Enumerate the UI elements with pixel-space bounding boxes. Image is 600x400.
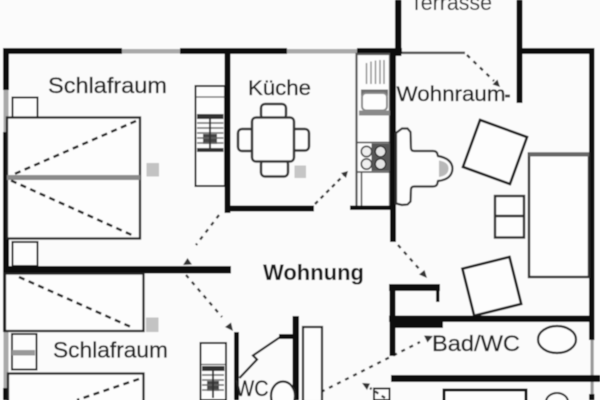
svg-text:WC: WC bbox=[236, 376, 269, 400]
svg-text:Bad/WC: Bad/WC bbox=[432, 331, 520, 356]
svg-text:Schlafraum: Schlafraum bbox=[48, 73, 167, 98]
svg-text:Schlafraum: Schlafraum bbox=[53, 338, 168, 363]
svg-text:Wohnraum: Wohnraum bbox=[397, 83, 506, 106]
svg-text:Terrasse: Terrasse bbox=[410, 0, 492, 15]
svg-text:Küche: Küche bbox=[248, 77, 311, 100]
svg-text:Wohnung: Wohnung bbox=[263, 260, 364, 285]
